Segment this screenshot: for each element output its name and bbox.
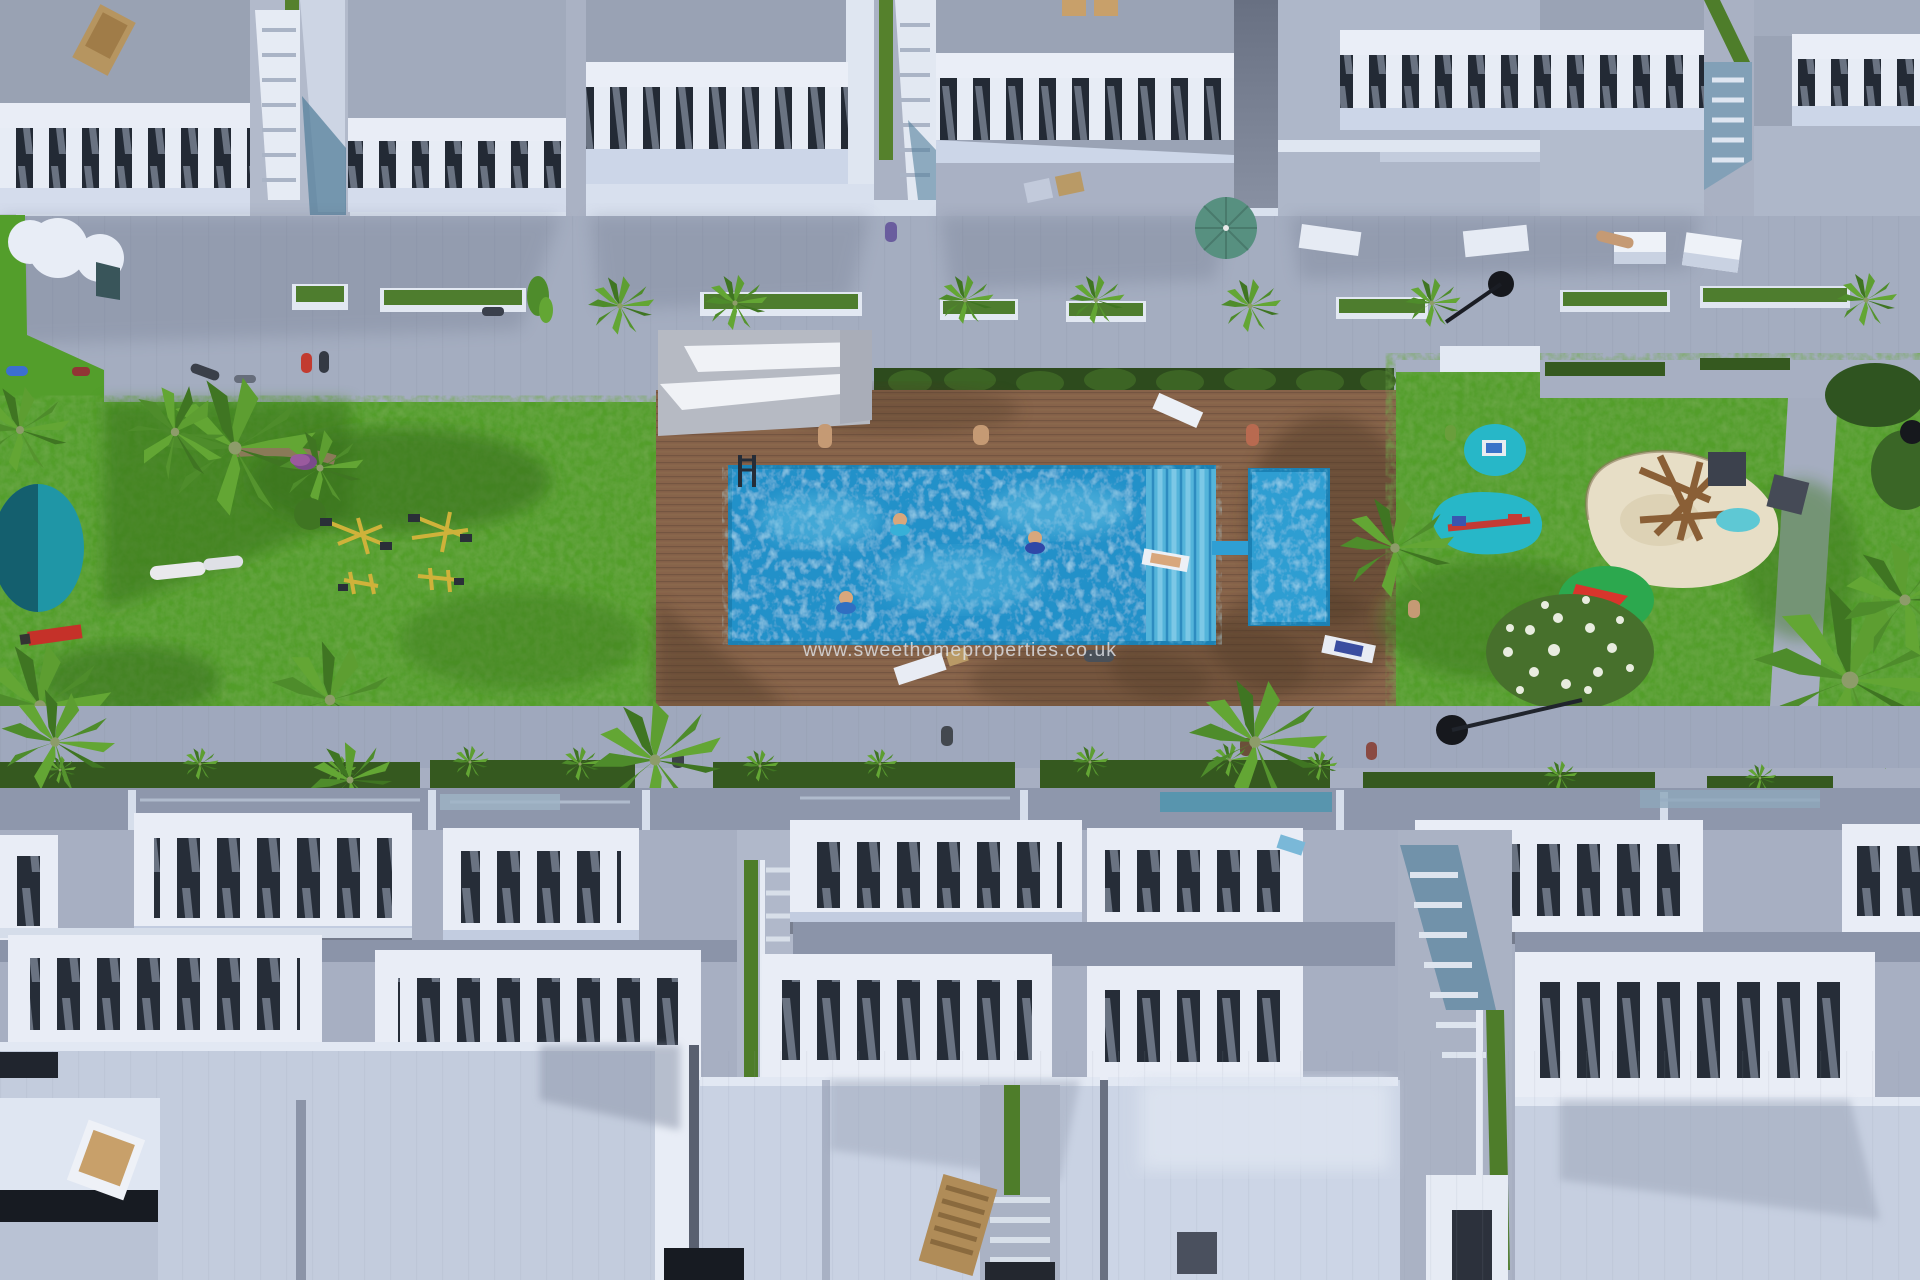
svg-text:www.sweethomeproperties.co.uk: www.sweethomeproperties.co.uk: [802, 639, 1117, 661]
